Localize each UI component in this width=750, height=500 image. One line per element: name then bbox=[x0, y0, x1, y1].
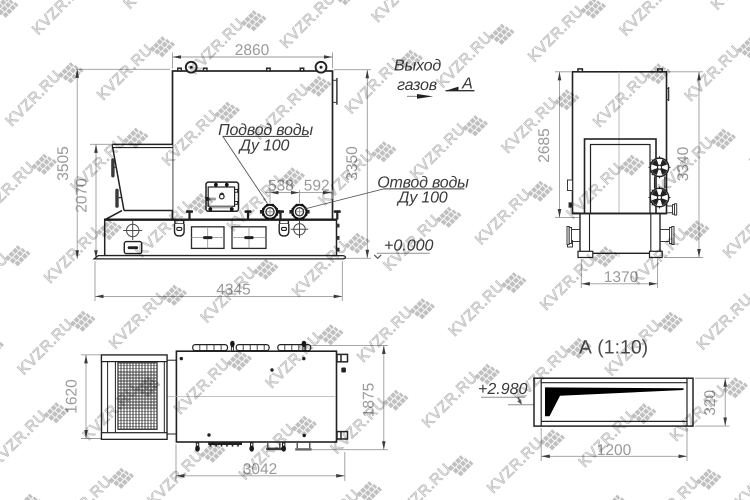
svg-text:газов: газов bbox=[397, 77, 437, 94]
svg-text:3505: 3505 bbox=[55, 146, 72, 180]
svg-text:2685: 2685 bbox=[536, 128, 553, 162]
svg-text:2860: 2860 bbox=[235, 42, 270, 59]
svg-text:Ду 100: Ду 100 bbox=[396, 189, 448, 206]
svg-text:А: А bbox=[461, 76, 473, 93]
